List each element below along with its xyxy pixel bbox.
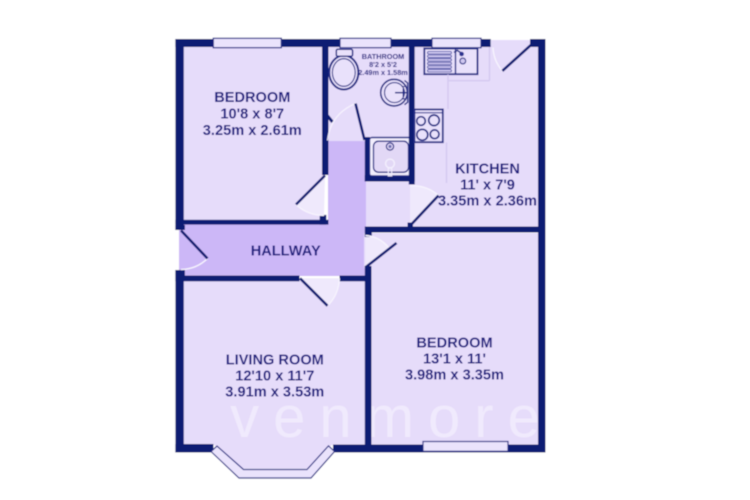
- svg-text:11' x 7'9: 11' x 7'9: [460, 178, 515, 194]
- svg-text:3.91m x 3.53m: 3.91m x 3.53m: [225, 384, 324, 400]
- svg-text:KITCHEN: KITCHEN: [455, 162, 520, 178]
- svg-text:2.49m x 1.58m: 2.49m x 1.58m: [358, 68, 408, 77]
- svg-text:BEDROOM: BEDROOM: [416, 335, 492, 351]
- svg-text:12'10 x 11'7: 12'10 x 11'7: [235, 368, 314, 384]
- svg-text:BEDROOM: BEDROOM: [214, 90, 290, 106]
- svg-text:13'1 x 11': 13'1 x 11': [423, 351, 486, 367]
- svg-text:3.25m x 2.61m: 3.25m x 2.61m: [203, 123, 302, 139]
- svg-text:LIVING ROOM: LIVING ROOM: [226, 352, 324, 368]
- svg-text:3.35m x 2.36m: 3.35m x 2.36m: [438, 194, 537, 210]
- svg-text:HALLWAY: HALLWAY: [251, 243, 321, 259]
- svg-text:3.98m x 3.35m: 3.98m x 3.35m: [405, 367, 504, 383]
- svg-text:10'8 x 8'7: 10'8 x 8'7: [220, 106, 284, 122]
